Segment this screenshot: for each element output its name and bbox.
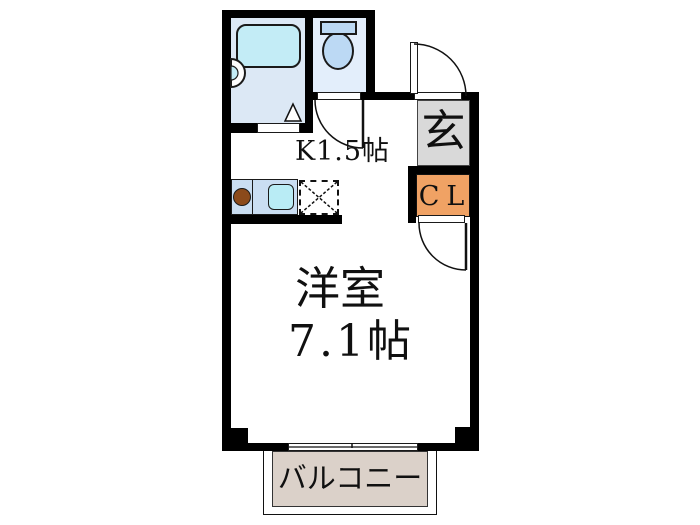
front-door-threshold — [414, 92, 462, 100]
wall-segment — [470, 92, 479, 451]
bathtub-icon — [236, 24, 301, 68]
wall-segment — [361, 92, 414, 100]
wall-segment — [222, 10, 231, 451]
wall-segment — [222, 10, 375, 18]
bathroom-door-threshold — [257, 123, 300, 133]
front-door-swing-arc — [414, 44, 466, 96]
stove-burner-icon — [233, 188, 251, 206]
closet-door-threshold — [418, 215, 465, 223]
wall-segment — [408, 166, 416, 223]
kitchen-sink-icon — [268, 184, 294, 210]
pillar — [455, 427, 479, 451]
entrance-label: 玄 — [417, 110, 470, 154]
wall-segment — [366, 10, 375, 100]
wall-segment — [408, 166, 479, 174]
floor-plan: K1.5帖 玄 CL 洋室 7.1帖 バルコニー — [0, 0, 700, 525]
closet-door-swing-arc — [419, 223, 466, 270]
wall-segment — [222, 215, 342, 224]
pillar — [222, 428, 248, 451]
closet-label: CL — [418, 183, 472, 210]
balcony-label: バルコニー — [272, 464, 428, 493]
balcony-window — [288, 443, 418, 451]
kitchen-label: K1.5帖 — [285, 138, 400, 165]
toilet-bowl-icon — [322, 32, 354, 70]
appliance-space-icon — [299, 180, 339, 215]
wall-segment — [305, 92, 317, 100]
wall-segment — [305, 10, 313, 133]
room-name-label: 洋室 — [225, 266, 455, 311]
toilet-tank-icon — [320, 21, 357, 35]
front-door-leaf — [410, 42, 418, 94]
toilet-door-threshold — [317, 92, 361, 100]
room-size-label: 7.1帖 — [231, 320, 471, 364]
